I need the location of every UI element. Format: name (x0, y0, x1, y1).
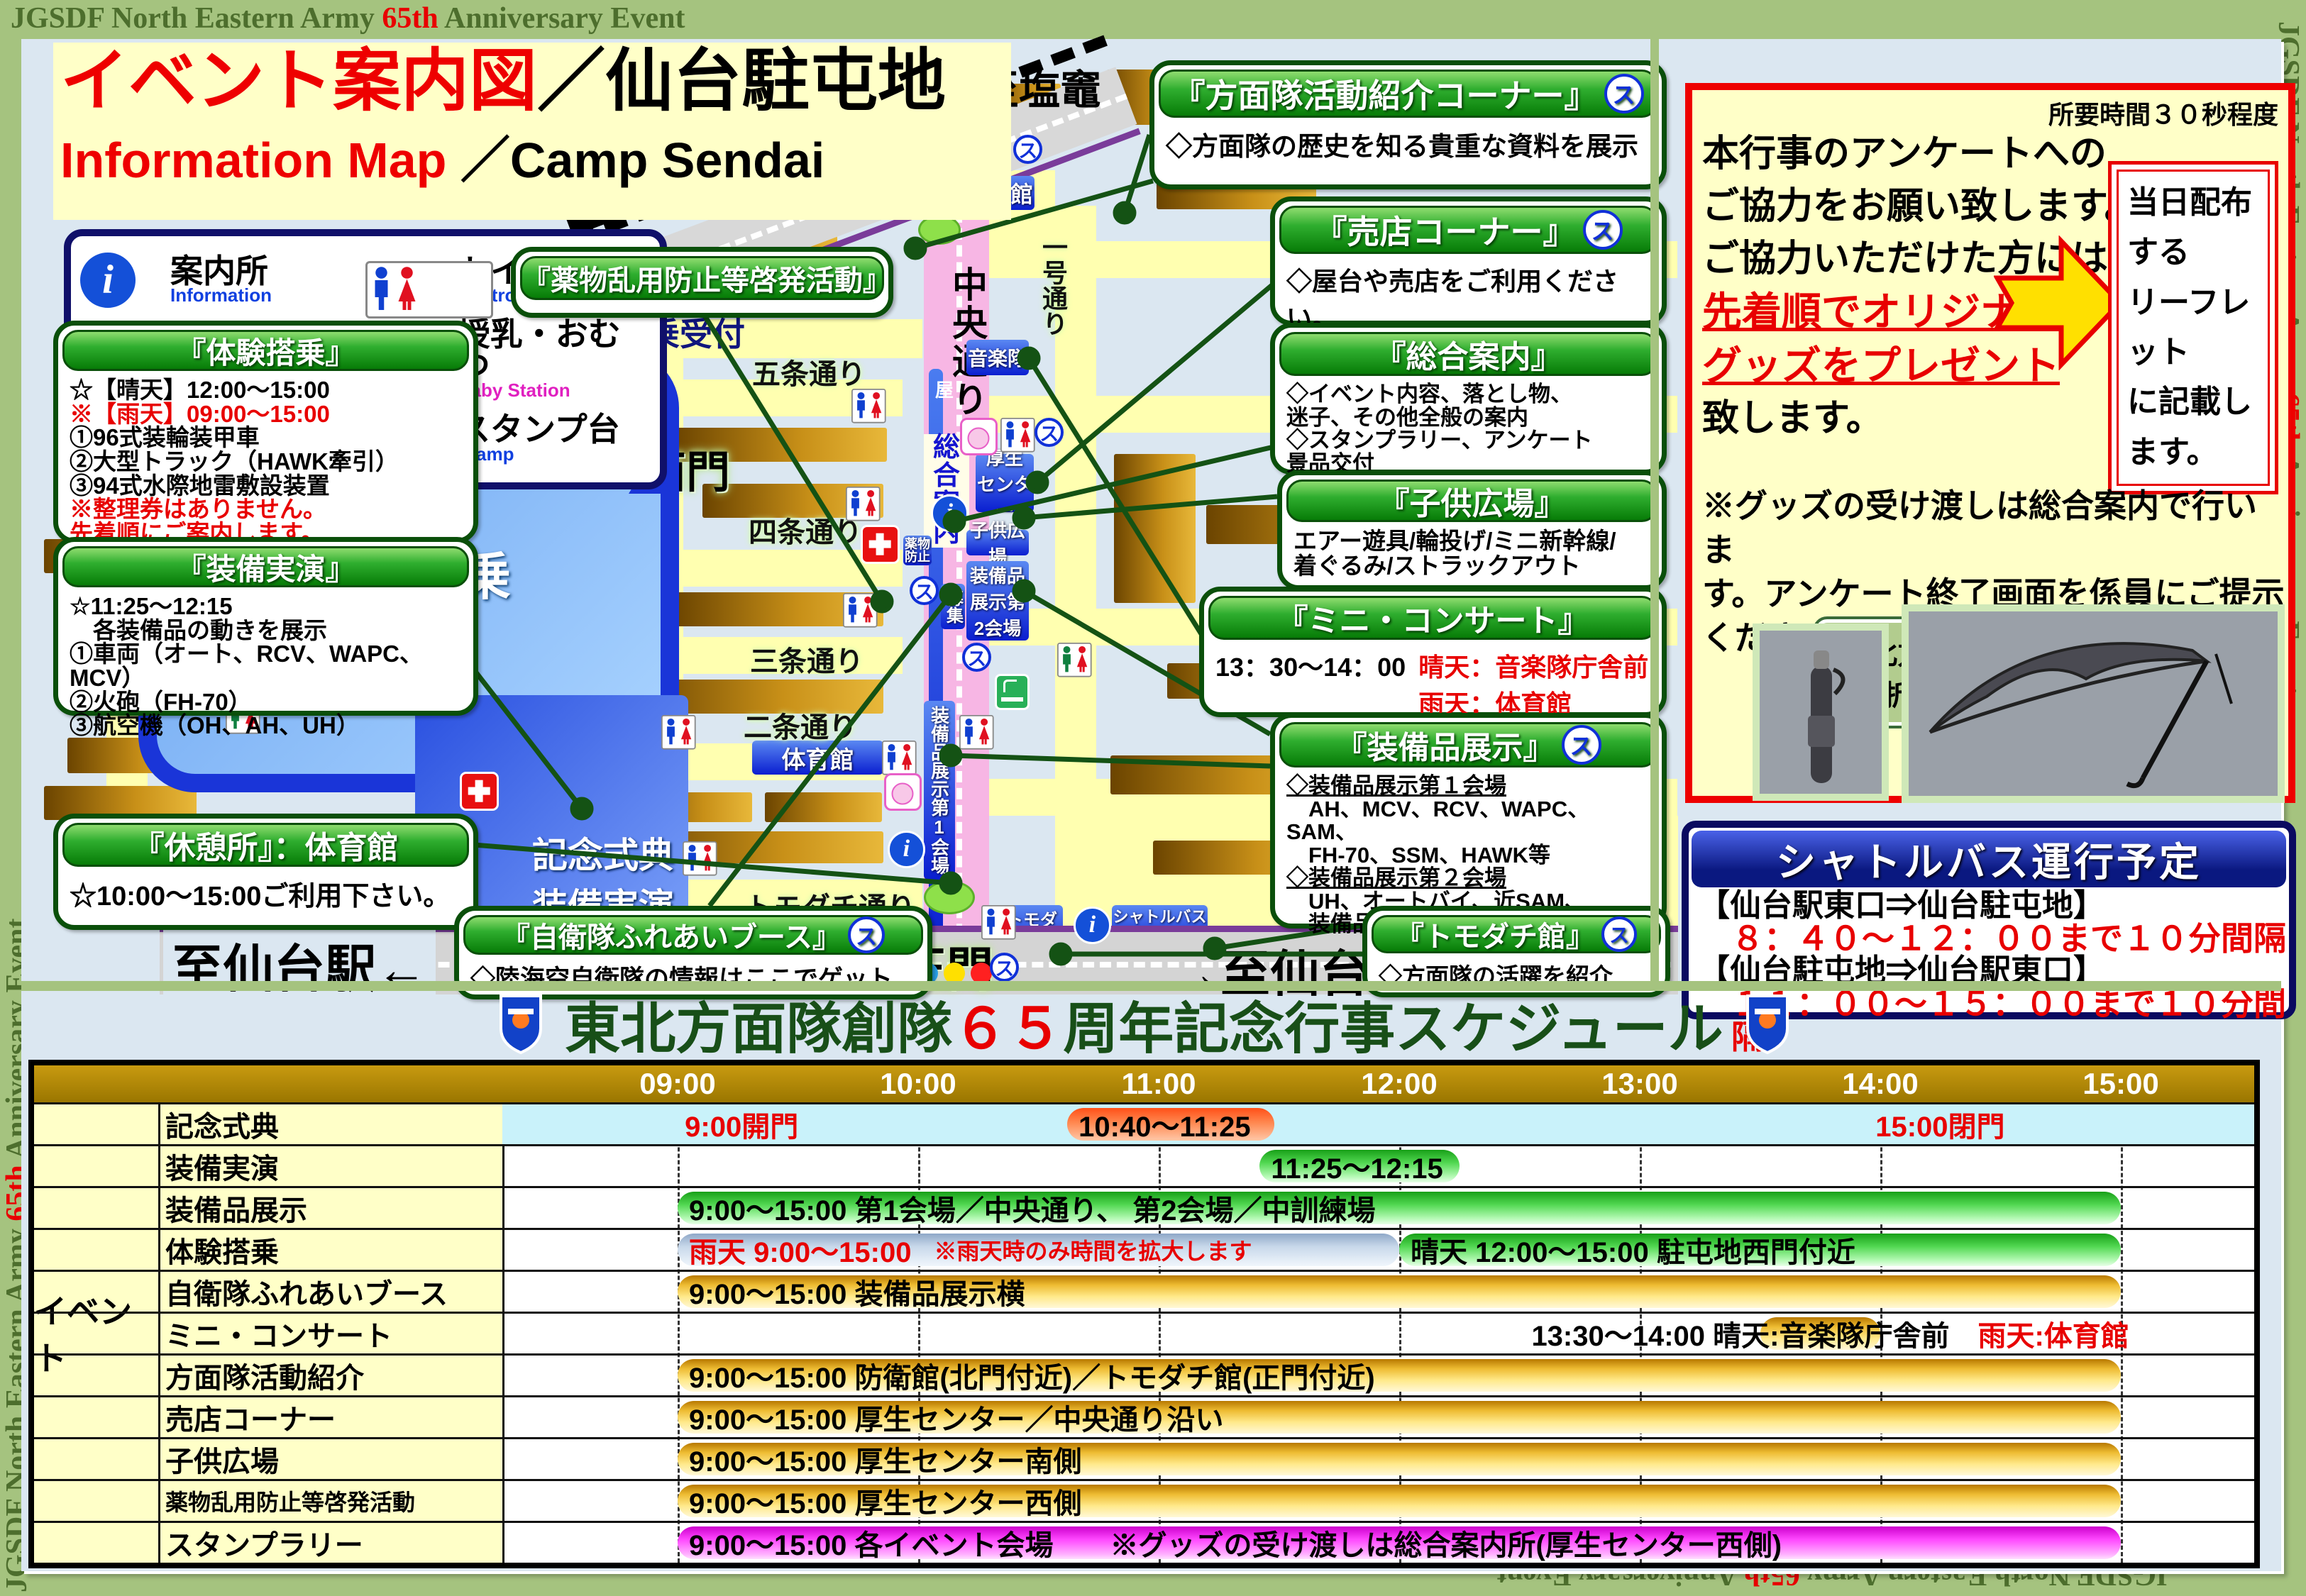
schedule-row: ミニ・コンサート13:30～14:00 晴天:音楽隊庁舎前 雨天:体育館 (34, 1312, 2254, 1353)
unit-crest-icon (1745, 993, 1790, 1055)
callout-yakubutsu: 『薬物乱用防止等啓発活動』 (511, 247, 893, 318)
stamp-icon: ス (1604, 74, 1644, 113)
schedule-bar: 9:00～15:00 厚生センター南側 (678, 1443, 2121, 1475)
event-poster: JGSDF North Eastern Army 65th Anniversar… (0, 0, 2306, 1596)
schedule-row: 売店コーナー9:00～15:00 厚生センター／中央通り沿い (34, 1395, 2254, 1437)
schedule-bar: 9:00～15:00 厚生センター／中央通り沿い (678, 1401, 2121, 1434)
shuttle-line: ８：４０～１２：００まで１０分間隔 (1689, 922, 2289, 955)
schedule-row: 装備実演11:25～12:15 (34, 1144, 2254, 1186)
schedule-bar: 9:00～15:00 各イベント会場 ※グッズの受け渡しは総合案内所(厚生センタ… (678, 1526, 2121, 1559)
arrow-right-icon (1994, 235, 2125, 370)
folded-umbrella-photo (1760, 631, 1882, 794)
callout-taiken-title: 『体験搭乗』 (62, 330, 469, 371)
schedule-bar: 10:40～11:25 (1067, 1108, 1274, 1141)
stamp-icon: ス (848, 916, 885, 953)
time-tick: 14:00 (1809, 1067, 1951, 1101)
schedule-row: スタンプラリー9:00～15:00 各イベント会場 ※グッズの受け渡しは総合案内… (34, 1521, 2254, 1563)
callout-baiten: 『売店コーナー』ス ◇屋台や売店をご利用ください。 (1270, 196, 1667, 326)
schedule-row: 薬物乱用防止等啓発活動9:00～15:00 厚生センター西側 (34, 1479, 2254, 1521)
callout-sogo-title: 『総合案内』 (1279, 332, 1657, 376)
schedule-row-label: 薬物乱用防止等啓発活動 (165, 1481, 415, 1521)
survey-duration: 所要時間３０秒程度 (2048, 94, 2278, 131)
time-tick: 11:00 (1088, 1067, 1230, 1101)
schedule-bar: 9:00～15:00 厚生センター西側 (678, 1485, 2121, 1517)
schedule-bar: 雨天 9:00～15:00 ※雨天時のみ時間を拡大します (678, 1234, 1399, 1266)
callout-kyukei-title: 『休憩所』：体育館 (62, 823, 469, 867)
callout-concert-title: 『ミニ・コンサート』 (1208, 596, 1657, 640)
callout-soubiten: 『装備品展示』ス ◇装備品展示第１会場 AH、MCV、RCV、WAPC、SAM、… (1270, 713, 1667, 929)
schedule-bar: 9:00～15:00 防衛館(北門付近)／トモダチ館(正門付近) (678, 1359, 2121, 1392)
unit-crest-icon (498, 993, 544, 1055)
edge-text-top: JGSDF North Eastern Army 65th Anniversar… (11, 1, 685, 35)
callout-homen-title: 『方面隊活動紹介コーナー』ス (1159, 70, 1657, 118)
callout-jitsuen-title: 『装備実演』 (62, 546, 469, 587)
restroom-icon (365, 261, 451, 299)
schedule-row-label: 自衛隊ふれあいブース (165, 1272, 448, 1312)
schedule-text: 9:00開門 (685, 1104, 798, 1144)
schedule-row-label: 装備実演 (165, 1146, 279, 1186)
schedule-row: 方面隊活動紹介9:00～15:00 防衛館(北門付近)／トモダチ館(正門付近) (34, 1353, 2254, 1395)
schedule-title: 東北方面隊創隊６５周年記念行事スケジュール (28, 992, 2260, 1057)
callout-sogo: 『総合案内』 ◇イベント内容、落とし物、 迷子、その他全般の案内 ◇スタンプラリ… (1270, 323, 1667, 475)
survey-panel: 所要時間３０秒程度 本行事のアンケートへの ご協力をお願い致します。 ご協力いた… (1685, 83, 2295, 803)
shuttle-title: シャトルバス運行予定 (1692, 831, 2286, 887)
schedule-row: 装備品展示9:00～15:00 第1会場／中央通り、 第2会場／中訓練場 (34, 1186, 2254, 1228)
leaflet-note-box: 当日配布するリーフレットに記載します。 (2108, 161, 2278, 494)
schedule-row-label: 記念式典 (165, 1104, 279, 1144)
schedule-table: 09:0010:0011:0012:0013:0014:0015:00 イベント… (28, 1060, 2260, 1568)
schedule-row-label: 子供広場 (165, 1439, 279, 1479)
schedule-header: 09:0010:0011:0012:0013:0014:0015:00 (34, 1065, 2254, 1102)
callout-fureai-title: 『自衛隊ふれあいブース』ス (463, 915, 923, 955)
schedule-row-label: ミニ・コンサート (165, 1314, 392, 1353)
schedule-row: 自衛隊ふれあいブース9:00～15:00 装備品展示横 (34, 1270, 2254, 1312)
callout-jitsuen: 『装備実演』 ☆11:25～12:15 各装備品の動きを展示 ①車両（オート、R… (53, 537, 478, 716)
open-umbrella-photo (1909, 611, 2278, 796)
schedule-row: 子供広場9:00～15:00 厚生センター南側 (34, 1437, 2254, 1479)
schedule-bar: 晴天 12:00～15:00 駐屯地西門付近 (1399, 1234, 2121, 1266)
stamp-icon: ス (1562, 725, 1601, 765)
time-tick: 13:00 (1569, 1067, 1711, 1101)
callout-baiten-title: 『売店コーナー』ス (1279, 206, 1657, 254)
shuttle-line: 【仙台駅東口⇒仙台駐屯地】 (1689, 890, 2289, 922)
callout-homen: 『方面隊活動紹介コーナー』ス ◇方面隊の歴史を知る貴重な資料を展示 (1149, 60, 1667, 189)
schedule-bar: 11:25～12:15 (1259, 1150, 1459, 1182)
stamp-icon: ス (1601, 916, 1637, 952)
callout-taiken: 『体験搭乗』 ☆【晴天】12:00～15:00 ※【雨天】09:00～15:00… (53, 321, 478, 543)
schedule-row: 記念式典10:40～11:259:00開門15:00閉門 (34, 1102, 2254, 1144)
callout-kodomo-title: 『子供広場』 (1286, 480, 1657, 522)
legend-info: i案内所Information (78, 240, 365, 319)
stamp-icon: ス (1583, 210, 1623, 250)
schedule-bar: 9:00～15:00 第1会場／中央通り、 第2会場／中訓練場 (678, 1192, 2121, 1224)
schedule-row-label: 売店コーナー (165, 1397, 336, 1437)
callout-yakubutsu-title: 『薬物乱用防止等啓発活動』 (520, 256, 884, 300)
schedule-bar: 9:00～15:00 装備品展示横 (678, 1275, 2121, 1308)
callout-tomodachikan-title: 『トモダチ館』ス (1372, 915, 1661, 953)
callout-concert: 『ミニ・コンサート』 13：30～14：00 晴天：音楽隊庁舎前雨天：体育館 (1199, 587, 1667, 717)
info-icon: i (78, 250, 163, 310)
schedule-row-label: 体験搭乗 (165, 1230, 279, 1270)
schedule-row-label: 方面隊活動紹介 (165, 1356, 364, 1395)
schedule-text: 15:00閉門 (1875, 1104, 2004, 1144)
schedule-row-label: 装備品展示 (165, 1188, 307, 1228)
schedule-row: 体験搭乗雨天 9:00～15:00 ※雨天時のみ時間を拡大します晴天 12:00… (34, 1228, 2254, 1270)
time-tick: 12:00 (1328, 1067, 1470, 1101)
time-tick: 09:00 (607, 1067, 749, 1101)
schedule-text: 13:30～14:00 晴天:音楽隊庁舎前 雨天:体育館 (1531, 1314, 2129, 1353)
map-title: イベント案内図／仙台駐屯地 Information Map ／Camp Send… (53, 43, 1011, 220)
time-tick: 15:00 (2050, 1067, 2192, 1101)
callout-kyukei: 『休憩所』：体育館 ☆10:00～15:00ご利用下さい。 (53, 814, 478, 930)
schedule-row-label: スタンプラリー (165, 1523, 363, 1563)
time-tick: 10:00 (847, 1067, 989, 1101)
callout-kodomo: 『子供広場』 エアー遊具/輪投げ/ミニ新幹線/ 着ぐるみ/ストラックアウト (1277, 470, 1667, 590)
callout-soubiten-title: 『装備品展示』ス (1279, 722, 1657, 767)
